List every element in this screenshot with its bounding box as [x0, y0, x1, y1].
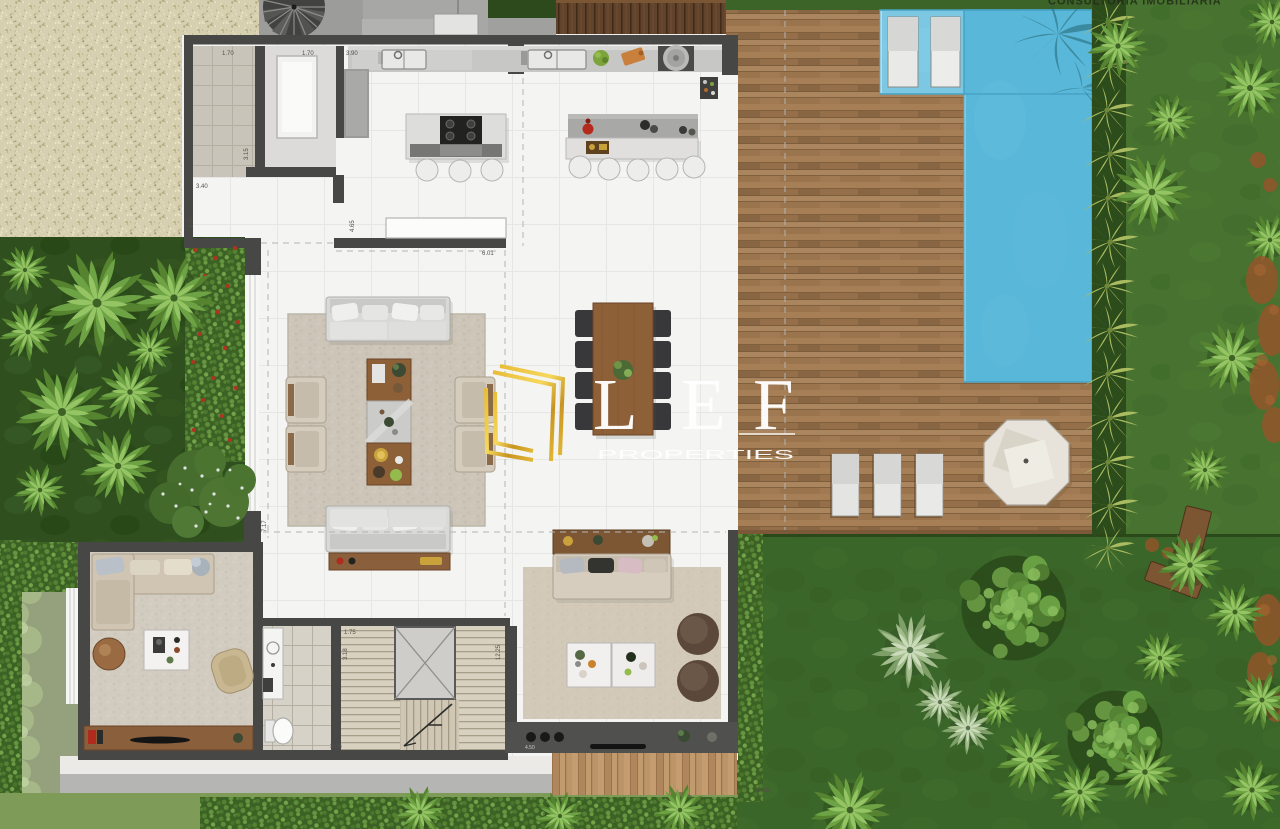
svg-text:3.40: 3.40 [196, 184, 208, 190]
svg-text:F: F [753, 364, 794, 445]
svg-text:6.01: 6.01 [482, 251, 494, 257]
svg-text:13.18: 13.18 [754, 788, 770, 794]
svg-text:3.18: 3.18 [343, 648, 349, 660]
svg-text:1.70: 1.70 [302, 51, 314, 57]
svg-text:E: E [681, 364, 726, 445]
svg-text:1.70: 1.70 [222, 51, 234, 57]
svg-text:L: L [593, 364, 638, 445]
svg-text:12.25: 12.25 [496, 644, 502, 660]
svg-text:1.30: 1.30 [188, 216, 194, 228]
svg-text:CONSULTORIA IMOBILIARIA: CONSULTORIA IMOBILIARIA [1048, 0, 1222, 8]
svg-text:3.06: 3.06 [330, 744, 342, 750]
svg-text:4.50: 4.50 [525, 745, 535, 751]
svg-text:7.17: 7.17 [262, 520, 268, 532]
svg-text:3.90: 3.90 [346, 51, 358, 57]
svg-text:4.65: 4.65 [350, 220, 356, 232]
svg-text:3.15: 3.15 [244, 148, 250, 160]
svg-text:1.75: 1.75 [344, 630, 356, 636]
svg-text:PROPERTIES: PROPERTIES [597, 447, 795, 462]
